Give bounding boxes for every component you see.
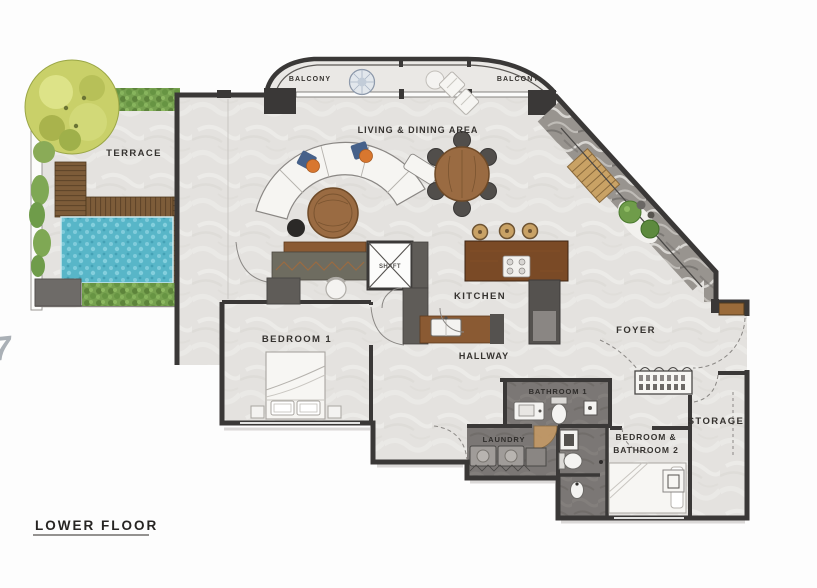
label-laundry: LAUNDRY (483, 435, 526, 444)
tall-cabinet (529, 280, 560, 344)
floor-plan-image: SHAFT (0, 0, 817, 588)
wc-lower (571, 482, 584, 499)
bed1 (266, 352, 325, 419)
label-balcony-right: BALCONY (497, 76, 539, 83)
door-handle-dot (599, 460, 603, 464)
railing-mullion (467, 58, 471, 67)
counter-end (490, 314, 504, 344)
label-storage: STORAGE (688, 416, 745, 427)
hedge-pool (82, 283, 190, 306)
label-kitchen: KITCHEN (454, 291, 506, 302)
wall-basin (584, 401, 597, 415)
nightstand-right (328, 406, 341, 418)
label-living-dining: LIVING & DINING AREA (358, 125, 479, 135)
wardrobe-block (267, 278, 300, 304)
page-title: LOWER FLOOR (35, 518, 158, 533)
bar-stools (473, 224, 538, 240)
desk-chair (326, 278, 346, 299)
watermark: 7 (0, 329, 15, 369)
pillow (297, 401, 320, 415)
stove (503, 256, 530, 277)
label-hallway: HALLWAY (459, 351, 509, 361)
sliding-glass-doors (296, 92, 529, 97)
toilet2 (559, 453, 582, 469)
entry-mat (719, 303, 744, 315)
wall-post-left (264, 88, 296, 114)
cabinet-strip (412, 242, 428, 288)
side-table (663, 470, 684, 492)
washer (470, 446, 496, 466)
dining-table (435, 147, 489, 201)
nightstand-left (251, 406, 264, 418)
tree (25, 60, 119, 154)
entry-pier (711, 299, 719, 313)
shaft: SHAFT (368, 242, 412, 289)
balcony-round-table (350, 70, 375, 95)
pillow (271, 401, 294, 415)
plan-title: LOWER FLOOR (33, 518, 158, 535)
kitchen-island (465, 241, 568, 281)
door-mullion (399, 89, 404, 99)
coffee-table (308, 188, 358, 238)
kitchen-sink (431, 316, 461, 336)
shoe-bench (635, 368, 692, 395)
floor-plan-svg: SHAFT (0, 0, 817, 588)
label-bathroom1: BATHROOM 1 (529, 387, 588, 396)
terrace-planter-block (35, 279, 81, 306)
label-bedroom-bathroom2-line2: BATHROOM 2 (613, 445, 679, 455)
label-foyer: FOYER (616, 325, 656, 336)
label-bedroom-bathroom2-line1: BEDROOM & (616, 432, 677, 442)
label-terrace: TERRACE (106, 148, 162, 159)
garden-rock (637, 201, 646, 210)
railing-mullion (399, 58, 403, 67)
basin2 (560, 430, 578, 450)
laundry-cabinet (526, 448, 546, 466)
pool (61, 217, 173, 283)
garden-rock (648, 212, 655, 219)
label-bedroom1: BEDROOM 1 (262, 334, 332, 345)
label-shaft: SHAFT (379, 264, 401, 270)
vanity-sink (514, 402, 544, 420)
ottoman (287, 219, 305, 237)
label-balcony-left: BALCONY (289, 76, 331, 83)
wall-shelf (284, 242, 366, 252)
dryer (498, 446, 524, 466)
toilet1 (551, 397, 567, 424)
